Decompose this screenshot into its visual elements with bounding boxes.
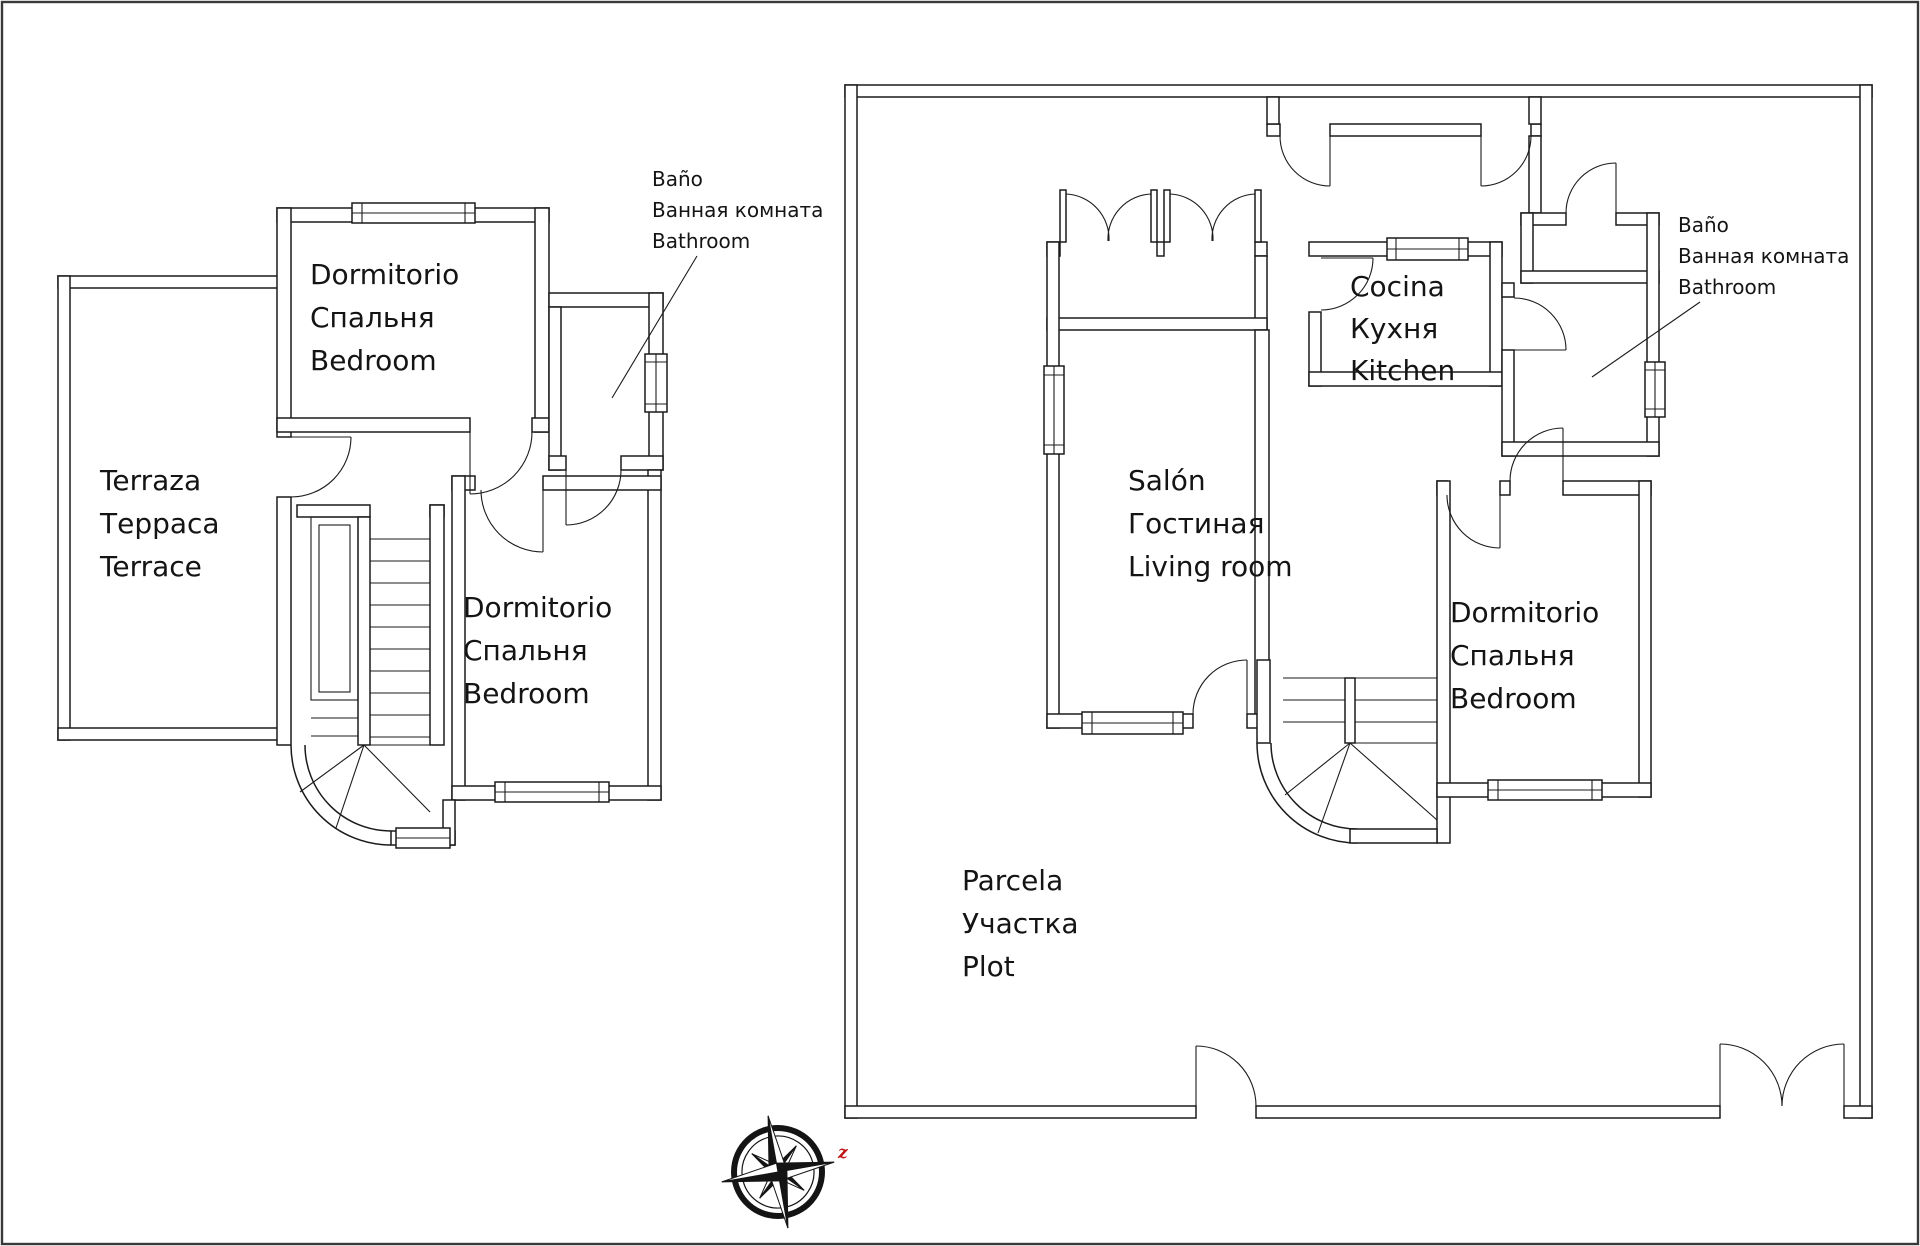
- window: [645, 354, 667, 412]
- gate-arc: [1196, 1046, 1256, 1106]
- window: [1044, 366, 1064, 454]
- wall: [1255, 242, 1267, 256]
- plot-label: Parcela: [962, 864, 1063, 897]
- door-arc: [1066, 194, 1109, 241]
- gate-arc: [1782, 1044, 1844, 1106]
- fence: [1529, 97, 1541, 124]
- kitchen-label: Kitchen: [1350, 354, 1455, 387]
- fence-gates: [1280, 136, 1531, 186]
- curved-wall: [1271, 743, 1357, 829]
- gate-arc: [1280, 136, 1330, 186]
- bedroom-label: Dormitorio: [1450, 596, 1599, 629]
- bedroom-bottom-label: Dormitorio: [463, 591, 612, 624]
- living-room-label: Living room: [1128, 550, 1293, 583]
- wall: [1502, 350, 1514, 456]
- wall: [58, 276, 280, 288]
- wall: [1600, 783, 1651, 797]
- bedroom-label: Спальня: [1450, 639, 1575, 672]
- wall: [1047, 714, 1085, 728]
- staircase: [1257, 660, 1437, 843]
- terrace-label: Терраса: [99, 507, 220, 540]
- window: [1082, 712, 1183, 734]
- plot-label: Участка: [962, 907, 1079, 940]
- window: [352, 203, 475, 223]
- window: [1387, 238, 1468, 260]
- bedroom-bottom-label: Спальня: [463, 634, 588, 667]
- living-room-label: Salón: [1128, 464, 1206, 497]
- wall: [277, 208, 291, 437]
- porch-french-doors: [1060, 190, 1261, 242]
- fence: [1330, 124, 1481, 136]
- door-arc: [1514, 298, 1566, 350]
- door-arc: [1108, 194, 1151, 241]
- wall: [549, 456, 566, 470]
- fence: [1267, 124, 1280, 136]
- wall: [1437, 783, 1490, 797]
- bedroom-bottom-label: Bedroom: [463, 677, 590, 710]
- wall: [1490, 242, 1502, 386]
- bathroom-label: Baño: [652, 167, 703, 191]
- door-arc: [1170, 194, 1213, 241]
- bathroom-label: Bathroom: [1678, 275, 1776, 299]
- plot-wall: [1844, 1106, 1872, 1118]
- door-leaf: [1255, 190, 1261, 242]
- plot-wall: [1256, 1106, 1720, 1118]
- living-room-label: Гостиная: [1128, 507, 1264, 540]
- wall: [1047, 452, 1059, 728]
- wall: [532, 418, 549, 432]
- fence: [1529, 136, 1541, 213]
- plot-wall: [845, 85, 857, 1118]
- wall: [1157, 242, 1164, 256]
- floorplan-page: Dormitorio Спальня Bedroom Terraza Терра…: [0, 0, 1920, 1246]
- wall: [1563, 481, 1651, 495]
- door-arc: [291, 437, 351, 497]
- plot-wall: [845, 1106, 1196, 1118]
- wall: [277, 497, 291, 745]
- door-leaf: [1164, 190, 1170, 242]
- kitchen-label: Cocina: [1350, 270, 1445, 303]
- fence: [1531, 124, 1541, 136]
- bathroom-label: Baño: [1678, 213, 1729, 237]
- window: [495, 782, 609, 802]
- door-arc: [1566, 163, 1616, 213]
- wall: [277, 418, 470, 432]
- wall: [58, 728, 280, 740]
- wall: [607, 786, 661, 800]
- wall: [549, 293, 663, 307]
- curved-wall: [305, 745, 391, 831]
- plot-wall: [845, 85, 1872, 97]
- bedroom-top-label: Спальня: [310, 301, 435, 334]
- wall: [648, 470, 661, 800]
- plot-gates: [1196, 1044, 1844, 1106]
- window: [1645, 362, 1665, 417]
- stair-treads: [1283, 678, 1437, 722]
- door-arc: [470, 432, 532, 494]
- compass-east-letter: z: [837, 1143, 848, 1163]
- bathroom-label: Bathroom: [652, 229, 750, 253]
- bedroom-top-label: Bedroom: [310, 344, 437, 377]
- bathroom-label: Ванная комната: [1678, 244, 1849, 268]
- compass-rose-icon: [712, 1106, 844, 1238]
- gate-arc: [1481, 136, 1531, 186]
- wall: [1047, 318, 1267, 330]
- window: [396, 828, 450, 848]
- floorplan-image: Dormitorio Спальня Bedroom Terraza Терра…: [0, 0, 1920, 1246]
- wall: [1502, 283, 1514, 297]
- terrace-label: Terraza: [99, 464, 201, 497]
- wall: [621, 456, 663, 470]
- wall: [1047, 242, 1059, 368]
- stair-winder: [1285, 743, 1437, 833]
- kitchen-label: Кухня: [1350, 312, 1438, 345]
- window: [1488, 780, 1602, 800]
- wall: [543, 476, 661, 490]
- wall: [1647, 213, 1659, 366]
- door-leaf: [1060, 190, 1066, 242]
- bathroom-label: Ванная комната: [652, 198, 823, 222]
- bedroom-top-label: Dormitorio: [310, 258, 459, 291]
- wall: [1500, 481, 1510, 495]
- wall: [1309, 242, 1390, 256]
- wall: [1521, 271, 1659, 283]
- wall: [549, 307, 561, 470]
- wall: [58, 276, 70, 740]
- door-arc: [1212, 194, 1255, 241]
- door-arc: [1193, 660, 1247, 714]
- wall: [1639, 481, 1651, 797]
- door-leaf: [1151, 190, 1157, 242]
- plot-label: Plot: [962, 950, 1015, 983]
- door-arc: [1447, 495, 1500, 548]
- floor-plan-upper: Dormitorio Спальня Bedroom Terraza Терра…: [58, 167, 823, 848]
- wall: [452, 786, 497, 800]
- terrace-label: Terrace: [99, 550, 202, 583]
- floor-plan-ground: Cocina Кухня Kitchen Salón Гостиная Livi…: [845, 85, 1872, 1118]
- gate-arc: [1720, 1044, 1782, 1106]
- door-arc: [481, 490, 543, 552]
- plot-wall: [1860, 85, 1872, 1118]
- staircase: [291, 505, 455, 848]
- wall: [535, 208, 549, 432]
- bedroom-label: Bedroom: [1450, 682, 1577, 715]
- fence: [1267, 97, 1279, 124]
